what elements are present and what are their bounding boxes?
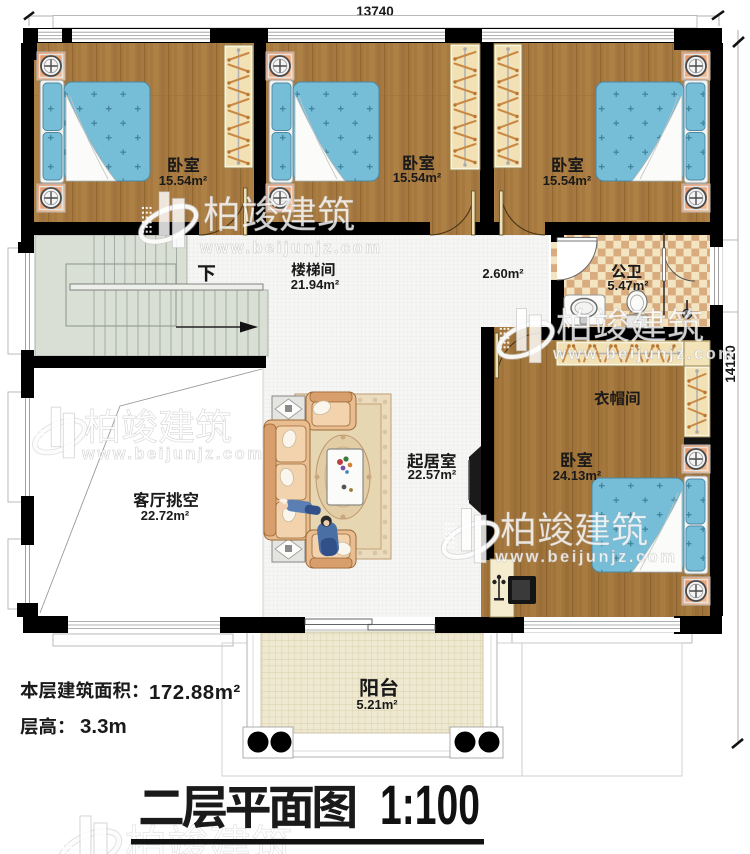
svg-text:22.72m²: 22.72m² — [141, 508, 190, 523]
svg-text:3.3m: 3.3m — [80, 715, 127, 738]
svg-text:1:100: 1:100 — [380, 773, 480, 836]
svg-text:www.beijunjz.com: www.beijunjz.com — [81, 445, 264, 463]
svg-text:www.beijunjz.com: www.beijunjz.com — [552, 345, 735, 363]
svg-text:5.21m²: 5.21m² — [356, 697, 398, 712]
svg-text:www.beijunjz.com: www.beijunjz.com — [199, 239, 382, 257]
svg-text:2.60m²: 2.60m² — [482, 266, 524, 281]
svg-text:21.94m²: 21.94m² — [291, 277, 340, 292]
svg-text:172.88m²: 172.88m² — [149, 681, 241, 704]
svg-text:22.57m²: 22.57m² — [408, 467, 457, 482]
svg-text:15.54m²: 15.54m² — [543, 173, 592, 188]
svg-text:5.47m²: 5.47m² — [607, 278, 649, 293]
svg-text:15.54m²: 15.54m² — [393, 170, 442, 185]
svg-text:24.13m²: 24.13m² — [553, 468, 602, 483]
svg-text:www.beijunjz.com: www.beijunjz.com — [494, 548, 677, 566]
svg-text:15.54m²: 15.54m² — [159, 173, 208, 188]
